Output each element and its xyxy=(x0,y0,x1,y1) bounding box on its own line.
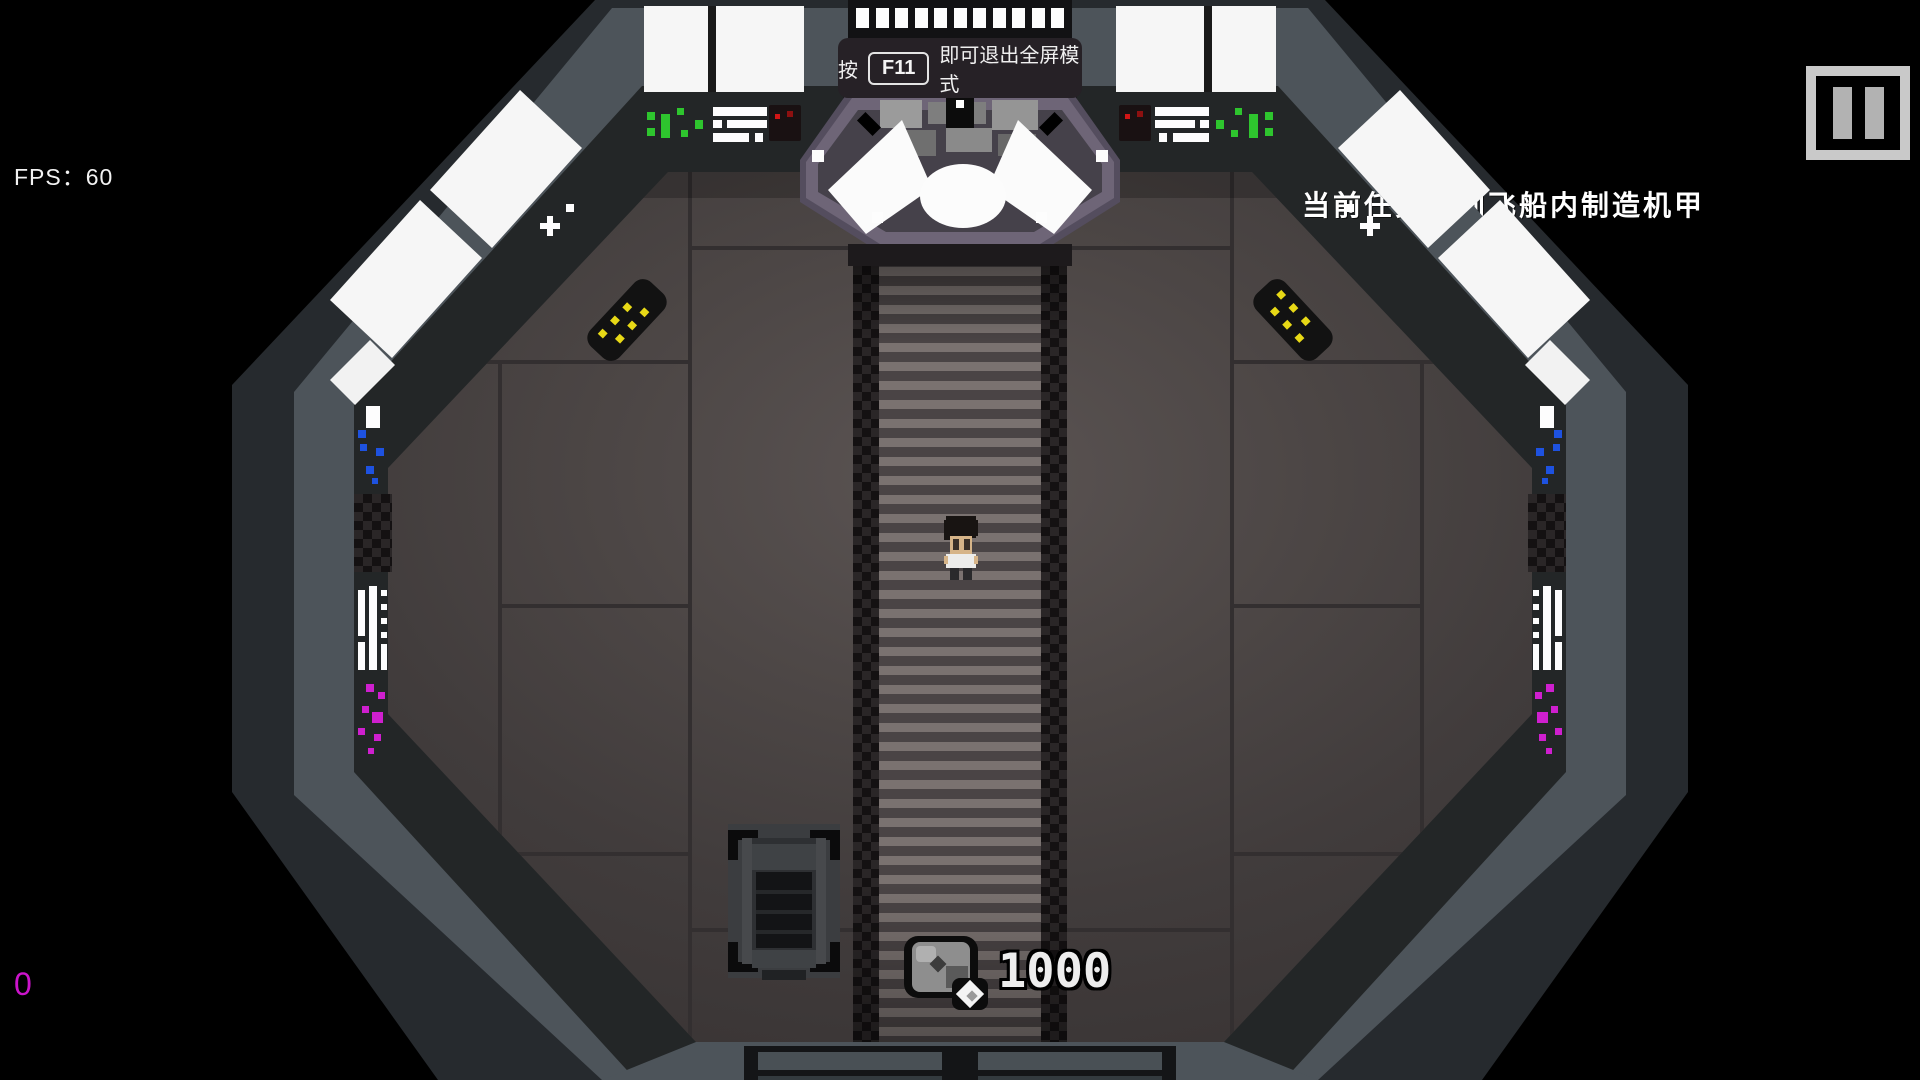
vent-slot xyxy=(934,8,947,28)
readout-bar xyxy=(755,133,763,142)
green-led xyxy=(661,114,670,138)
cockpit-dome xyxy=(920,164,1006,228)
bench-core-line xyxy=(756,910,812,914)
barcode-bar xyxy=(1533,644,1539,670)
frame-mark xyxy=(812,150,824,162)
barcode-bar xyxy=(1555,590,1562,636)
floor-tile-line xyxy=(1230,604,1424,608)
yellow-led xyxy=(1282,320,1292,330)
currency-display: 1000 xyxy=(898,930,1118,1016)
pause-icon xyxy=(1833,87,1852,139)
wall-barcode xyxy=(1528,586,1566,672)
wall-lamp xyxy=(1540,406,1554,428)
cockpit-base xyxy=(848,244,1072,266)
floor-tile-line xyxy=(1420,360,1424,856)
yellow-led xyxy=(1270,307,1280,317)
green-led xyxy=(1235,108,1242,115)
green-led xyxy=(647,128,655,136)
magenta-led xyxy=(1546,748,1552,754)
character-shirt xyxy=(946,554,976,568)
readout-bar xyxy=(713,120,722,128)
green-led xyxy=(695,120,703,129)
game-viewport: 当前任务：到飞船内制造机甲 xyxy=(0,0,1920,1080)
magenta-led xyxy=(1551,706,1558,713)
player-character xyxy=(944,514,978,580)
readout-bar xyxy=(713,133,749,142)
machinery-tile xyxy=(992,100,1038,130)
blue-led xyxy=(360,444,367,451)
fabricator-bench[interactable] xyxy=(728,824,840,978)
notice-suffix: 即可退出全屏模式 xyxy=(939,39,1082,97)
barcode-bar xyxy=(1555,642,1562,670)
magenta-led xyxy=(374,734,381,741)
character-leg xyxy=(963,568,972,580)
bench-core-line xyxy=(756,930,812,934)
vent-slot xyxy=(895,8,908,28)
barcode-bar xyxy=(381,644,387,670)
machinery-tile xyxy=(946,128,992,152)
control-panel-readout-left xyxy=(713,104,769,146)
hull-marking xyxy=(1346,204,1354,212)
yellow-led xyxy=(598,329,608,339)
door-panel xyxy=(758,1076,942,1080)
yellow-led xyxy=(615,334,625,344)
magenta-led xyxy=(362,706,369,713)
yellow-led xyxy=(610,315,620,325)
barcode-dot xyxy=(1533,590,1539,596)
readout-bar xyxy=(727,120,767,128)
barcode-dot xyxy=(381,590,387,596)
barcode-bar xyxy=(358,642,365,670)
hull-marking xyxy=(540,223,560,229)
yellow-led xyxy=(639,307,649,317)
fullscreen-notice: 按 F11 即可退出全屏模式 xyxy=(838,38,1082,98)
wall-vent-grid xyxy=(1528,494,1566,572)
green-led xyxy=(1231,130,1238,137)
bottom-door[interactable] xyxy=(744,1046,1176,1080)
control-panel-readout-right xyxy=(1155,104,1211,146)
barcode-bar xyxy=(369,586,377,670)
magenta-led xyxy=(1535,692,1542,699)
character-leg xyxy=(950,568,959,580)
yellow-led xyxy=(622,302,632,312)
magenta-led xyxy=(1537,712,1548,723)
blue-led xyxy=(1536,448,1544,456)
pause-icon xyxy=(1865,87,1884,139)
top-window-left xyxy=(644,6,804,92)
frame-mark xyxy=(1036,212,1047,223)
bench-bar xyxy=(752,950,816,968)
ore-gem-icon xyxy=(898,930,994,1014)
pipe-light xyxy=(956,100,964,108)
bench-foot xyxy=(762,970,806,980)
top-window-left-frame xyxy=(708,6,716,92)
red-led xyxy=(1137,111,1143,117)
green-led xyxy=(1265,112,1273,120)
magenta-led xyxy=(372,712,383,723)
character-hand xyxy=(944,556,948,564)
yellow-led xyxy=(1288,303,1298,313)
vent-slot xyxy=(993,8,1006,28)
green-led xyxy=(677,108,684,115)
green-led xyxy=(647,112,655,120)
notice-prefix: 按 xyxy=(838,54,858,83)
readout-bar xyxy=(1173,133,1209,142)
control-panel-green-right xyxy=(1211,104,1275,146)
f11-key-badge: F11 xyxy=(868,52,929,85)
magenta-led xyxy=(1555,728,1562,735)
wall-vent-grid xyxy=(354,494,392,572)
bench-core-line xyxy=(756,890,812,894)
vent-slot xyxy=(973,8,986,28)
vent-slot xyxy=(876,8,889,28)
vent-slot xyxy=(856,8,869,28)
readout-bar xyxy=(1155,120,1195,128)
readout-bar xyxy=(713,107,767,116)
cockpit-vents xyxy=(856,8,1064,30)
blue-led xyxy=(366,466,374,474)
barcode-bar xyxy=(358,590,365,636)
bench-bar xyxy=(752,844,816,870)
top-window-right xyxy=(1116,6,1276,92)
green-led xyxy=(1265,128,1273,136)
yellow-led xyxy=(1301,316,1311,326)
barcode-dot xyxy=(1533,618,1539,624)
blue-led xyxy=(1546,466,1554,474)
magenta-led xyxy=(368,748,374,754)
magenta-led xyxy=(1546,684,1554,692)
red-led xyxy=(787,111,793,117)
yellow-led xyxy=(1295,333,1305,343)
door-panel xyxy=(978,1076,1162,1080)
hull-marking xyxy=(1360,223,1380,229)
yellow-led xyxy=(1276,290,1286,300)
character-hair xyxy=(946,516,976,538)
blue-led xyxy=(376,448,384,456)
red-led xyxy=(775,114,780,119)
top-window-right-frame xyxy=(1204,6,1212,92)
barcode-dot xyxy=(1533,604,1539,610)
red-led xyxy=(1125,114,1130,119)
barcode-dot xyxy=(381,632,387,638)
bench-core xyxy=(756,872,812,948)
blue-led xyxy=(372,478,378,484)
debug-counter: 0 xyxy=(14,966,32,1003)
barcode-bar xyxy=(1543,586,1551,670)
control-panel-red-left xyxy=(769,105,801,141)
readout-bar xyxy=(1200,120,1209,128)
barcode-dot xyxy=(381,618,387,624)
blue-led xyxy=(358,430,366,438)
side-wall-decor-left xyxy=(352,400,392,760)
floor-tile-line xyxy=(498,360,502,856)
green-led xyxy=(1249,114,1258,138)
blue-led xyxy=(1553,444,1560,451)
bench-rail xyxy=(742,838,752,964)
green-led xyxy=(1216,120,1224,129)
magenta-led xyxy=(1539,734,1546,741)
magenta-led xyxy=(366,684,374,692)
readout-bar xyxy=(1159,133,1167,142)
magenta-led xyxy=(378,692,385,699)
magenta-led xyxy=(358,728,365,735)
hull-marking xyxy=(566,204,574,212)
walkway-shading xyxy=(853,248,1067,1042)
side-wall-decor-right xyxy=(1528,400,1568,760)
yellow-led xyxy=(627,321,637,331)
fps-counter: FPS：60 xyxy=(14,158,113,192)
frame-mark xyxy=(1096,150,1108,162)
wall-barcode xyxy=(354,586,392,672)
blue-led xyxy=(1554,430,1562,438)
frame-mark xyxy=(872,212,883,223)
blue-led xyxy=(1542,478,1548,484)
green-led xyxy=(681,130,688,137)
vent-slot xyxy=(1032,8,1045,28)
door-panel xyxy=(978,1052,1162,1070)
pause-button[interactable] xyxy=(1806,66,1910,160)
control-panel-green-left xyxy=(645,104,709,146)
character-hand xyxy=(974,556,978,564)
vent-slot xyxy=(915,8,928,28)
vent-slot xyxy=(954,8,967,28)
currency-amount: 1000 xyxy=(998,944,1111,999)
barcode-dot xyxy=(1533,632,1539,638)
readout-bar xyxy=(1155,107,1209,116)
vent-slot xyxy=(1051,8,1064,28)
vent-slot xyxy=(1012,8,1025,28)
floor-tile-line xyxy=(498,604,692,608)
barcode-dot xyxy=(381,604,387,610)
bench-rail xyxy=(816,838,826,964)
door-panel xyxy=(758,1052,942,1070)
character-eye xyxy=(953,539,959,550)
character-eye xyxy=(964,539,970,550)
character-hair xyxy=(974,520,978,536)
wall-lamp xyxy=(366,406,380,428)
walkway xyxy=(853,248,1067,1042)
control-panel-red-right xyxy=(1119,105,1151,141)
